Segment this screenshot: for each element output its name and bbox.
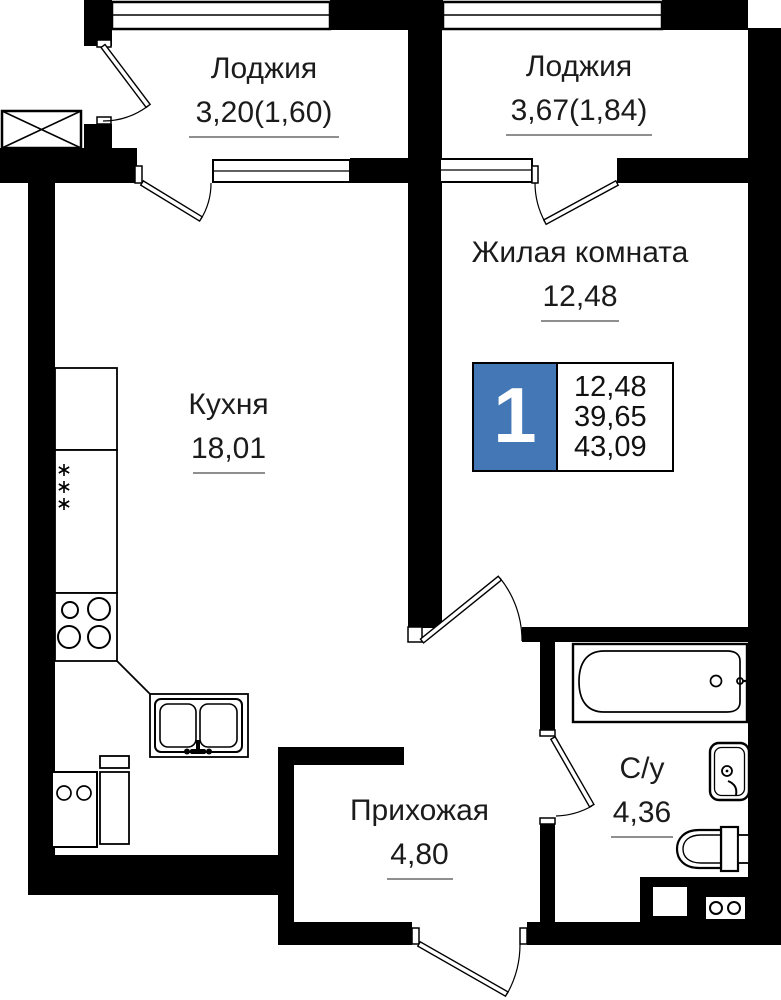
loggia-window-left [112,2,330,29]
loggia-side-door [101,44,150,121]
room-area: 4,80 [332,838,507,873]
entrance-door [418,942,520,996]
area-without-loggia-value: 39,65 [574,402,672,432]
living-area-value: 12,48 [574,372,672,402]
area-underline [387,878,453,880]
area-underline [506,134,652,136]
room-name: Кухня [141,388,316,423]
room-label-living-room: Жилая комната 12,48 [430,236,730,322]
loggia-window-right [443,2,662,29]
room-area: 12,48 [430,280,730,315]
rooms-count-badge: 1 [474,364,558,470]
floor-plan: Лоджия 3,20(1,60) Лоджия 3,67(1,84) Жила… [0,0,781,1000]
area-underline [189,136,339,138]
washbasin-icon [710,743,749,800]
living-loggia-door [535,181,618,225]
bathtub-icon [573,644,749,722]
room-area: 18,01 [141,432,316,467]
room-name: Прихожая [332,794,507,829]
kitchen-loggia-door [141,181,211,221]
room-name: С/у [574,752,710,787]
room-name: Лоджия [473,50,685,85]
apartment-info-badge: 1 12,48 39,65 43,09 [472,362,674,472]
area-values: 12,48 39,65 43,09 [558,364,672,470]
kitchen-loggia-window [213,160,350,182]
area-underline [611,836,673,838]
vent-shaft-icon [2,111,81,148]
room-area: 4,36 [574,796,710,831]
washing-machine-icon [52,772,97,847]
area-underline [541,320,619,322]
room-label-hallway: Прихожая 4,80 [332,794,507,880]
room-name: Жилая комната [430,236,730,271]
total-area-value: 43,09 [574,432,672,462]
room-label-loggia-2: Лоджия 3,67(1,84) [473,50,685,136]
area-underline [193,472,265,474]
room-area: 3,20(1,60) [158,96,370,131]
room-name: Лоджия [158,52,370,87]
kitchen-sink-icon [155,699,242,755]
room-label-loggia-1: Лоджия 3,20(1,60) [158,52,370,138]
living-loggia-window [440,159,532,182]
room-area: 3,67(1,84) [473,94,685,129]
room-label-bathroom: С/у 4,36 [574,752,710,838]
room-label-kitchen: Кухня 18,01 [141,388,316,474]
kitchen-cabinet-icon [100,756,129,844]
